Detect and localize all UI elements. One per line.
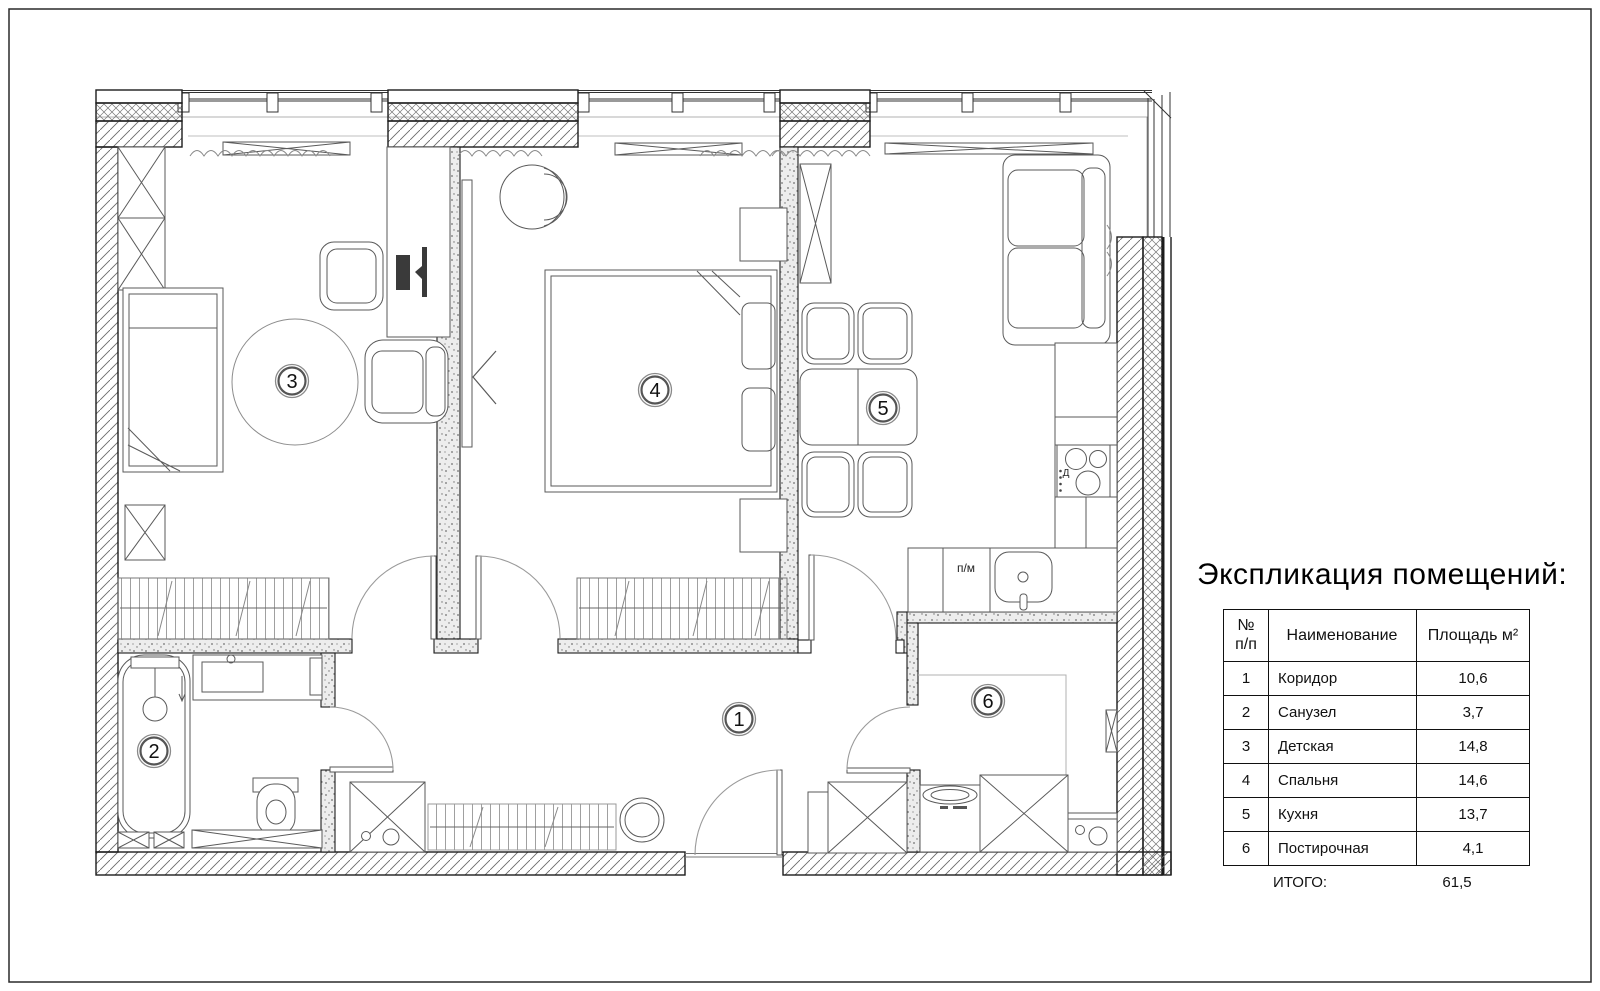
cell-name: Кухня bbox=[1269, 798, 1417, 832]
room-corridor bbox=[428, 782, 907, 853]
cell-name: Спальня bbox=[1269, 764, 1417, 798]
corner-window bbox=[1144, 91, 1171, 237]
monitor bbox=[422, 247, 427, 297]
door-jamb bbox=[896, 640, 904, 653]
top-window-band bbox=[96, 91, 1152, 137]
round-chair bbox=[500, 165, 567, 229]
room-laundry bbox=[918, 675, 1117, 852]
header-name: Наименование bbox=[1269, 610, 1417, 662]
washer-niche bbox=[350, 782, 425, 852]
dishwasher-label: п/м bbox=[957, 561, 975, 575]
floor-plan-sheet: п/м Д bbox=[0, 0, 1600, 991]
room-badge-children: 3 bbox=[276, 365, 309, 398]
room-badge-bathroom: 2 bbox=[138, 735, 171, 768]
cell-number: 1 bbox=[1224, 662, 1269, 696]
sofa bbox=[1003, 155, 1112, 345]
stove-gas-label: Д bbox=[1063, 468, 1070, 479]
room-badge-corridor: 1 bbox=[723, 703, 756, 736]
bed-single bbox=[123, 288, 223, 472]
cell-area: 10,6 bbox=[1417, 662, 1530, 696]
coat-rail bbox=[428, 804, 616, 850]
shoe-cabinet bbox=[808, 792, 828, 853]
door-bathroom bbox=[330, 707, 393, 772]
window-mullions bbox=[178, 93, 1071, 112]
interior-partitions bbox=[118, 147, 1117, 852]
wall-bath-right-upper bbox=[321, 653, 335, 707]
total-value: 61,5 bbox=[1402, 874, 1512, 891]
room-kitchen: п/м Д bbox=[772, 143, 1117, 612]
right-exterior-wall bbox=[1117, 237, 1171, 875]
cell-number: 2 bbox=[1224, 696, 1269, 730]
wall-bath-top bbox=[118, 639, 352, 653]
desk bbox=[387, 147, 450, 337]
svg-text:4: 4 bbox=[649, 380, 660, 402]
svg-text:1: 1 bbox=[733, 709, 744, 731]
svg-text:6: 6 bbox=[982, 691, 993, 713]
door-kitchen bbox=[809, 555, 896, 640]
svg-text:2: 2 bbox=[148, 741, 159, 763]
toilet bbox=[253, 778, 298, 835]
tv-panel bbox=[462, 180, 496, 447]
cell-name: Коридор bbox=[1269, 662, 1417, 696]
wall-laundry-top bbox=[907, 612, 1117, 623]
keyboard bbox=[396, 255, 410, 290]
cell-area: 14,6 bbox=[1417, 764, 1530, 798]
cell-area: 3,7 bbox=[1417, 696, 1530, 730]
armchair bbox=[365, 340, 448, 423]
wall-cabinet bbox=[310, 658, 322, 695]
nightstand bbox=[740, 499, 787, 552]
wall-pier-middle bbox=[388, 90, 578, 147]
door-laundry bbox=[847, 707, 910, 773]
pouf bbox=[620, 798, 664, 842]
cell-number: 4 bbox=[1224, 764, 1269, 798]
door-jamb bbox=[798, 640, 811, 653]
room-explication-legend: Экспликация помещений: № п/п Наименовани… bbox=[1197, 558, 1557, 896]
cabinet-small bbox=[125, 505, 165, 560]
nightstand bbox=[740, 208, 787, 261]
door-bedroom bbox=[476, 556, 560, 639]
table-header-row: № п/п Наименование Площадь м² bbox=[1224, 610, 1530, 662]
table-row: 4 Спальня 14,6 bbox=[1224, 764, 1530, 798]
hall-wardrobe bbox=[828, 782, 907, 853]
wall-bath-right-lower bbox=[321, 770, 335, 852]
tall-cabinet-fridge bbox=[800, 164, 831, 283]
kitchen-sink bbox=[995, 552, 1052, 610]
cell-area: 4,1 bbox=[1417, 832, 1530, 866]
room-badge-laundry: 6 bbox=[972, 685, 1005, 718]
radiator bbox=[1106, 710, 1117, 752]
vanity-sink bbox=[193, 655, 322, 700]
cell-number: 6 bbox=[1224, 832, 1269, 866]
table-row: 5 Кухня 13,7 bbox=[1224, 798, 1530, 832]
wall-laundry-left-upper bbox=[907, 623, 918, 705]
wall-pier-left bbox=[96, 90, 182, 147]
header-number: № п/п bbox=[1224, 610, 1269, 662]
room-badge-kitchen: 5 bbox=[867, 392, 900, 425]
explication-table: № п/п Наименование Площадь м² 1 Коридор … bbox=[1223, 609, 1530, 866]
wall-pier-kitchen bbox=[780, 90, 870, 147]
laundry-cabinet bbox=[980, 775, 1068, 852]
legend-title: Экспликация помещений: bbox=[1197, 558, 1557, 592]
svg-text:5: 5 bbox=[877, 398, 888, 420]
table-row: 3 Детская 14,8 bbox=[1224, 730, 1530, 764]
header-area: Площадь м² bbox=[1417, 610, 1530, 662]
total-row: ИТОГО: 61,5 bbox=[1223, 874, 1514, 896]
laundry-sink-cabinet bbox=[920, 785, 980, 852]
door-children-room bbox=[352, 556, 436, 639]
wardrobe-tall bbox=[118, 147, 165, 290]
wall-corridor-top bbox=[558, 639, 798, 653]
wardrobe-clothes-rail bbox=[577, 578, 787, 639]
curtain bbox=[190, 142, 350, 156]
svg-text:3: 3 bbox=[286, 371, 297, 393]
cell-name: Детская bbox=[1269, 730, 1417, 764]
left-exterior-wall bbox=[96, 147, 118, 852]
room-badge-bedroom: 4 bbox=[639, 374, 672, 407]
cell-number: 5 bbox=[1224, 798, 1269, 832]
total-label: ИТОГО: bbox=[1273, 874, 1327, 891]
desk-chair bbox=[320, 242, 383, 310]
cell-area: 14,8 bbox=[1417, 730, 1530, 764]
bottom-exterior-wall bbox=[96, 852, 1171, 875]
table-row: 1 Коридор 10,6 bbox=[1224, 662, 1530, 696]
door-entry bbox=[695, 770, 782, 855]
room-bedroom bbox=[458, 143, 787, 639]
table-row: 6 Постирочная 4,1 bbox=[1224, 832, 1530, 866]
wardrobe-clothes-rail bbox=[118, 578, 329, 639]
wall-stub-doors bbox=[434, 639, 478, 653]
washing-machine bbox=[1068, 813, 1117, 852]
tub-platform bbox=[118, 830, 322, 848]
cell-number: 3 bbox=[1224, 730, 1269, 764]
cell-area: 13,7 bbox=[1417, 798, 1530, 832]
wall-laundry-left-lower bbox=[907, 770, 920, 852]
table-row: 2 Санузел 3,7 bbox=[1224, 696, 1530, 730]
cell-name: Постирочная bbox=[1269, 832, 1417, 866]
cell-name: Санузел bbox=[1269, 696, 1417, 730]
